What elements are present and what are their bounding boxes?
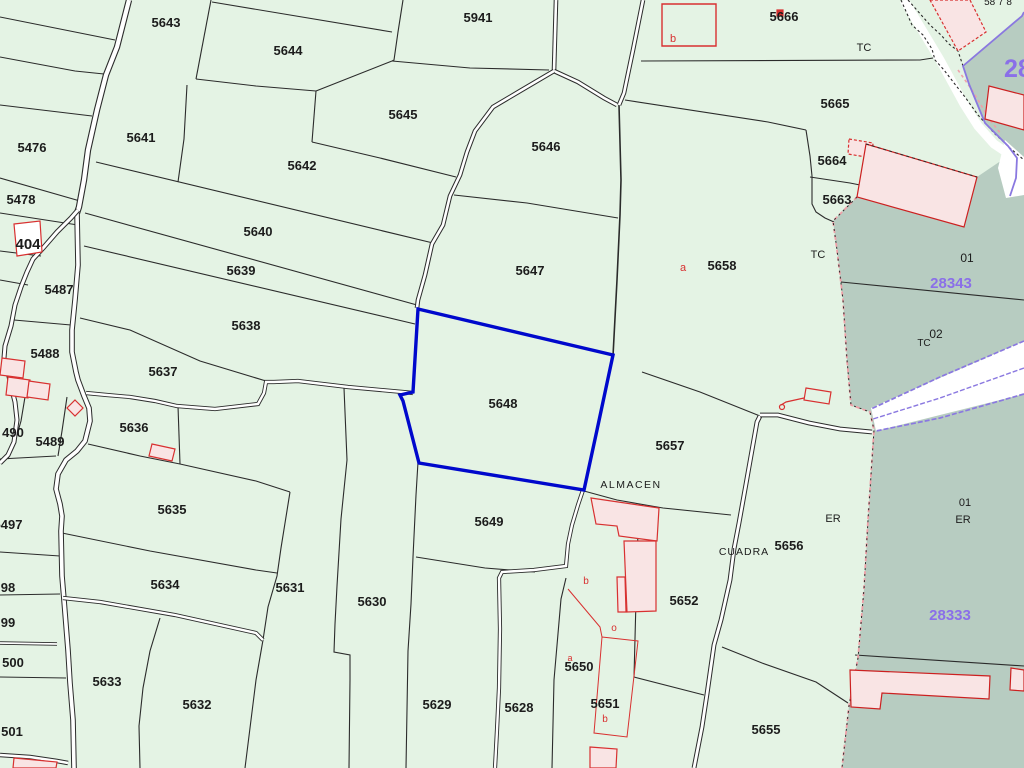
svg-text:5639: 5639 [227, 263, 256, 278]
svg-text:5643: 5643 [152, 15, 181, 30]
svg-text:5636: 5636 [120, 420, 149, 435]
svg-text:501: 501 [1, 724, 23, 739]
svg-text:5641: 5641 [127, 130, 156, 145]
svg-text:ER: ER [825, 513, 840, 525]
svg-text:5645: 5645 [389, 107, 418, 122]
svg-text:28343: 28343 [930, 275, 972, 292]
svg-text:5651: 5651 [591, 696, 620, 711]
svg-text:5629: 5629 [423, 697, 452, 712]
svg-text:5663: 5663 [823, 192, 852, 207]
svg-text:b: b [602, 714, 608, 725]
svg-text:5478: 5478 [7, 192, 36, 207]
svg-text:5655: 5655 [752, 722, 781, 737]
svg-text:01: 01 [959, 497, 971, 509]
svg-text:5634: 5634 [151, 577, 181, 592]
svg-text:01: 01 [960, 251, 974, 265]
svg-text:CUADRA: CUADRA [719, 546, 769, 558]
svg-text:5644: 5644 [274, 43, 304, 58]
svg-text:5630: 5630 [358, 594, 387, 609]
svg-text:5476: 5476 [18, 140, 47, 155]
svg-text:5488: 5488 [31, 346, 60, 361]
svg-text:5666: 5666 [770, 9, 799, 24]
svg-text:5633: 5633 [93, 674, 122, 689]
svg-text:5648: 5648 [489, 396, 518, 411]
svg-text:404: 404 [15, 236, 41, 253]
svg-text:5646: 5646 [532, 139, 561, 154]
svg-text:5642: 5642 [288, 158, 317, 173]
svg-text:99: 99 [1, 615, 15, 630]
svg-text:b: b [583, 576, 589, 587]
svg-text:b: b [670, 33, 676, 45]
svg-text:5652: 5652 [670, 593, 699, 608]
svg-text:58 7 8: 58 7 8 [984, 0, 1012, 8]
svg-text:a: a [567, 653, 572, 663]
svg-text:28333: 28333 [929, 607, 971, 624]
svg-text:5637: 5637 [149, 364, 178, 379]
svg-text:5632: 5632 [183, 697, 212, 712]
svg-text:ALMACEN: ALMACEN [600, 479, 661, 491]
svg-text:5649: 5649 [475, 514, 504, 529]
svg-text:02: 02 [929, 327, 943, 341]
svg-text:5647: 5647 [516, 263, 545, 278]
svg-text:5489: 5489 [36, 434, 65, 449]
svg-text:5631: 5631 [276, 580, 305, 595]
svg-text:5487: 5487 [45, 282, 74, 297]
svg-text:5941: 5941 [464, 10, 493, 25]
svg-text:TC: TC [857, 42, 872, 54]
svg-text:5658: 5658 [708, 258, 737, 273]
svg-text:5638: 5638 [232, 318, 261, 333]
svg-text:5635: 5635 [158, 502, 187, 517]
svg-text:5628: 5628 [505, 700, 534, 715]
svg-text:5665: 5665 [821, 96, 850, 111]
svg-text:5497: 5497 [0, 517, 22, 532]
svg-text:TC: TC [811, 249, 826, 261]
svg-text:a: a [680, 262, 687, 274]
svg-text:98: 98 [1, 580, 15, 595]
svg-text:5664: 5664 [818, 153, 848, 168]
svg-text:o: o [611, 623, 617, 634]
svg-text:5640: 5640 [244, 224, 273, 239]
svg-text:500: 500 [2, 655, 24, 670]
svg-text:283: 283 [1004, 55, 1024, 83]
svg-text:5656: 5656 [775, 538, 804, 553]
svg-text:490: 490 [2, 425, 24, 440]
svg-text:5657: 5657 [656, 438, 685, 453]
svg-text:ER: ER [955, 514, 970, 526]
